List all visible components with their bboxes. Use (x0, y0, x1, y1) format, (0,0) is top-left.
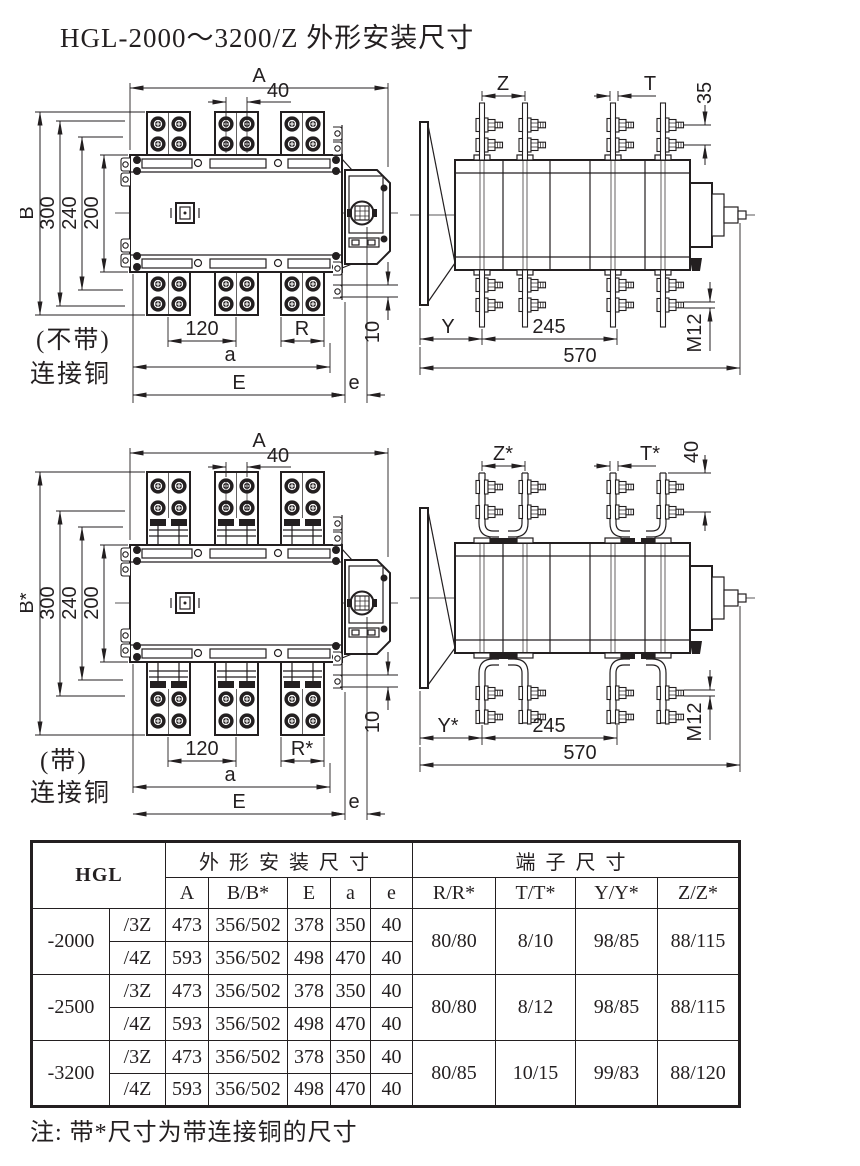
dim-label-A: A (252, 430, 266, 452)
dim-label-300: 300 (37, 196, 59, 229)
value-a: 470 (331, 1074, 371, 1107)
value-B: 356/502 (209, 942, 288, 975)
dim-label-200: 200 (81, 196, 103, 229)
value-B: 356/502 (209, 1041, 288, 1074)
value-R: 80/80 (413, 975, 496, 1041)
value-T: 8/12 (496, 975, 576, 1041)
caption-with-copper-line2: 连接铜 (30, 773, 111, 809)
caption-no-copper-line1: (不带) (36, 320, 111, 356)
dim-label-M12: M12 (684, 314, 706, 353)
value-A: 593 (166, 1008, 209, 1041)
caption-no-copper-line2: 连接铜 (30, 354, 111, 390)
value-e: 40 (371, 1041, 413, 1074)
dim-label-120: 120 (185, 318, 218, 340)
dim-label-120: 120 (185, 738, 218, 760)
dim-label-R-star: R* (291, 738, 313, 760)
col-header-T: T/T* (496, 878, 576, 909)
value-e: 40 (371, 1074, 413, 1107)
value-Y: 98/85 (576, 975, 658, 1041)
dim-label-40: 40 (681, 441, 703, 463)
variant-cell: /3Z (110, 975, 166, 1008)
dim-label-Y-star: Y* (437, 715, 458, 737)
value-e: 40 (371, 1008, 413, 1041)
dim-label-A: A (252, 65, 266, 87)
value-B: 356/502 (209, 975, 288, 1008)
model-3200: -3200 (32, 1041, 110, 1107)
variant-cell: /4Z (110, 1074, 166, 1107)
model-2500: -2500 (32, 975, 110, 1041)
dim-label-T: T (644, 73, 656, 95)
dim-label-e: e (348, 372, 359, 394)
value-Y: 98/85 (576, 909, 658, 975)
value-A: 473 (166, 909, 209, 942)
model-2000: -2000 (32, 909, 110, 975)
dim-label-Y: Y (441, 316, 454, 338)
dim-label-570: 570 (563, 742, 596, 764)
value-R: 80/80 (413, 909, 496, 975)
col-header-B: B/B* (209, 878, 288, 909)
front-plain-handle (342, 159, 390, 268)
side-copper-body (410, 508, 755, 688)
col-header-R: R/R* (413, 878, 496, 909)
dim-label-R: R (295, 318, 309, 340)
value-E: 498 (288, 942, 331, 975)
value-a: 350 (331, 1041, 371, 1074)
value-B: 356/502 (209, 909, 288, 942)
variant-cell: /4Z (110, 942, 166, 975)
value-a: 350 (331, 909, 371, 942)
dim-label-E: E (232, 791, 245, 813)
dim-label-10: 10 (362, 711, 384, 733)
dim-label-10: 10 (362, 321, 384, 343)
value-e: 40 (371, 942, 413, 975)
value-A: 593 (166, 1074, 209, 1107)
value-e: 40 (371, 975, 413, 1008)
col-header-Z: Z/Z* (658, 878, 740, 909)
value-A: 593 (166, 942, 209, 975)
value-Z: 88/115 (658, 909, 740, 975)
value-Z: 88/120 (658, 1041, 740, 1107)
dim-label-Z-star: Z* (493, 443, 513, 465)
dim-label-M12: M12 (684, 703, 706, 742)
dim-label-245: 245 (532, 715, 565, 737)
footnote: 注: 带*尺寸为带连接铜的尺寸 (30, 1112, 358, 1147)
dim-label-40: 40 (267, 445, 289, 467)
variant-cell: /3Z (110, 1041, 166, 1074)
col-header-A: A (166, 878, 209, 909)
value-Z: 88/115 (658, 975, 740, 1041)
dim-label-e: e (348, 791, 359, 813)
value-B: 356/502 (209, 1008, 288, 1041)
section-header-outline: 外形安装尺寸 (166, 842, 413, 878)
dim-label-T-star: T* (640, 443, 660, 465)
page-title: HGL-2000～3200/Z 外形安装尺寸 (60, 16, 474, 55)
dim-label-245: 245 (532, 316, 565, 338)
dim-label-300: 300 (37, 586, 59, 619)
value-a: 470 (331, 942, 371, 975)
col-header-E: E (288, 878, 331, 909)
drawing-side-with-copper: Z* T* 40 Y* 245 570 (410, 420, 860, 820)
value-R: 80/85 (413, 1041, 496, 1107)
col-header-Y: Y/Y* (576, 878, 658, 909)
dim-label-40: 40 (267, 80, 289, 102)
dim-label-35: 35 (694, 82, 716, 104)
front-copper-handle (342, 549, 390, 658)
col-header-a: a (331, 878, 371, 909)
value-E: 378 (288, 975, 331, 1008)
value-T: 10/15 (496, 1041, 576, 1107)
value-a: 350 (331, 975, 371, 1008)
dim-label-E: E (232, 372, 245, 394)
value-T: 8/10 (496, 909, 576, 975)
spec-table: HGL 外形安装尺寸 端子尺寸 A B/B* E a e R/R* T/T* Y… (30, 840, 741, 1108)
section-header-terminal: 端子尺寸 (413, 842, 740, 878)
variant-cell: /4Z (110, 1008, 166, 1041)
col-header-e: e (371, 878, 413, 909)
value-E: 378 (288, 1041, 331, 1074)
dim-label-a: a (224, 764, 236, 786)
dim-label-B-star: B* (20, 592, 38, 613)
dim-label-B: B (20, 206, 38, 219)
variant-cell: /3Z (110, 909, 166, 942)
dim-label-200: 200 (81, 586, 103, 619)
value-e: 40 (371, 909, 413, 942)
dim-label-Z: Z (497, 73, 509, 95)
value-a: 470 (331, 1008, 371, 1041)
side-plain-body (410, 122, 755, 305)
table-brand: HGL (32, 842, 166, 909)
dim-label-a: a (224, 344, 236, 366)
value-A: 473 (166, 1041, 209, 1074)
dim-label-240: 240 (59, 196, 81, 229)
drawing-sheet: HGL-2000～3200/Z 外形安装尺寸 (0, 0, 860, 1166)
drawing-side-no-copper: Z T 35 Y 245 570 (410, 55, 860, 400)
value-Y: 99/83 (576, 1041, 658, 1107)
dim-label-240: 240 (59, 586, 81, 619)
dim-label-570: 570 (563, 345, 596, 367)
value-E: 498 (288, 1008, 331, 1041)
value-A: 473 (166, 975, 209, 1008)
caption-with-copper-line1: (带) (40, 741, 88, 777)
value-E: 378 (288, 909, 331, 942)
value-B: 356/502 (209, 1074, 288, 1107)
value-E: 498 (288, 1074, 331, 1107)
